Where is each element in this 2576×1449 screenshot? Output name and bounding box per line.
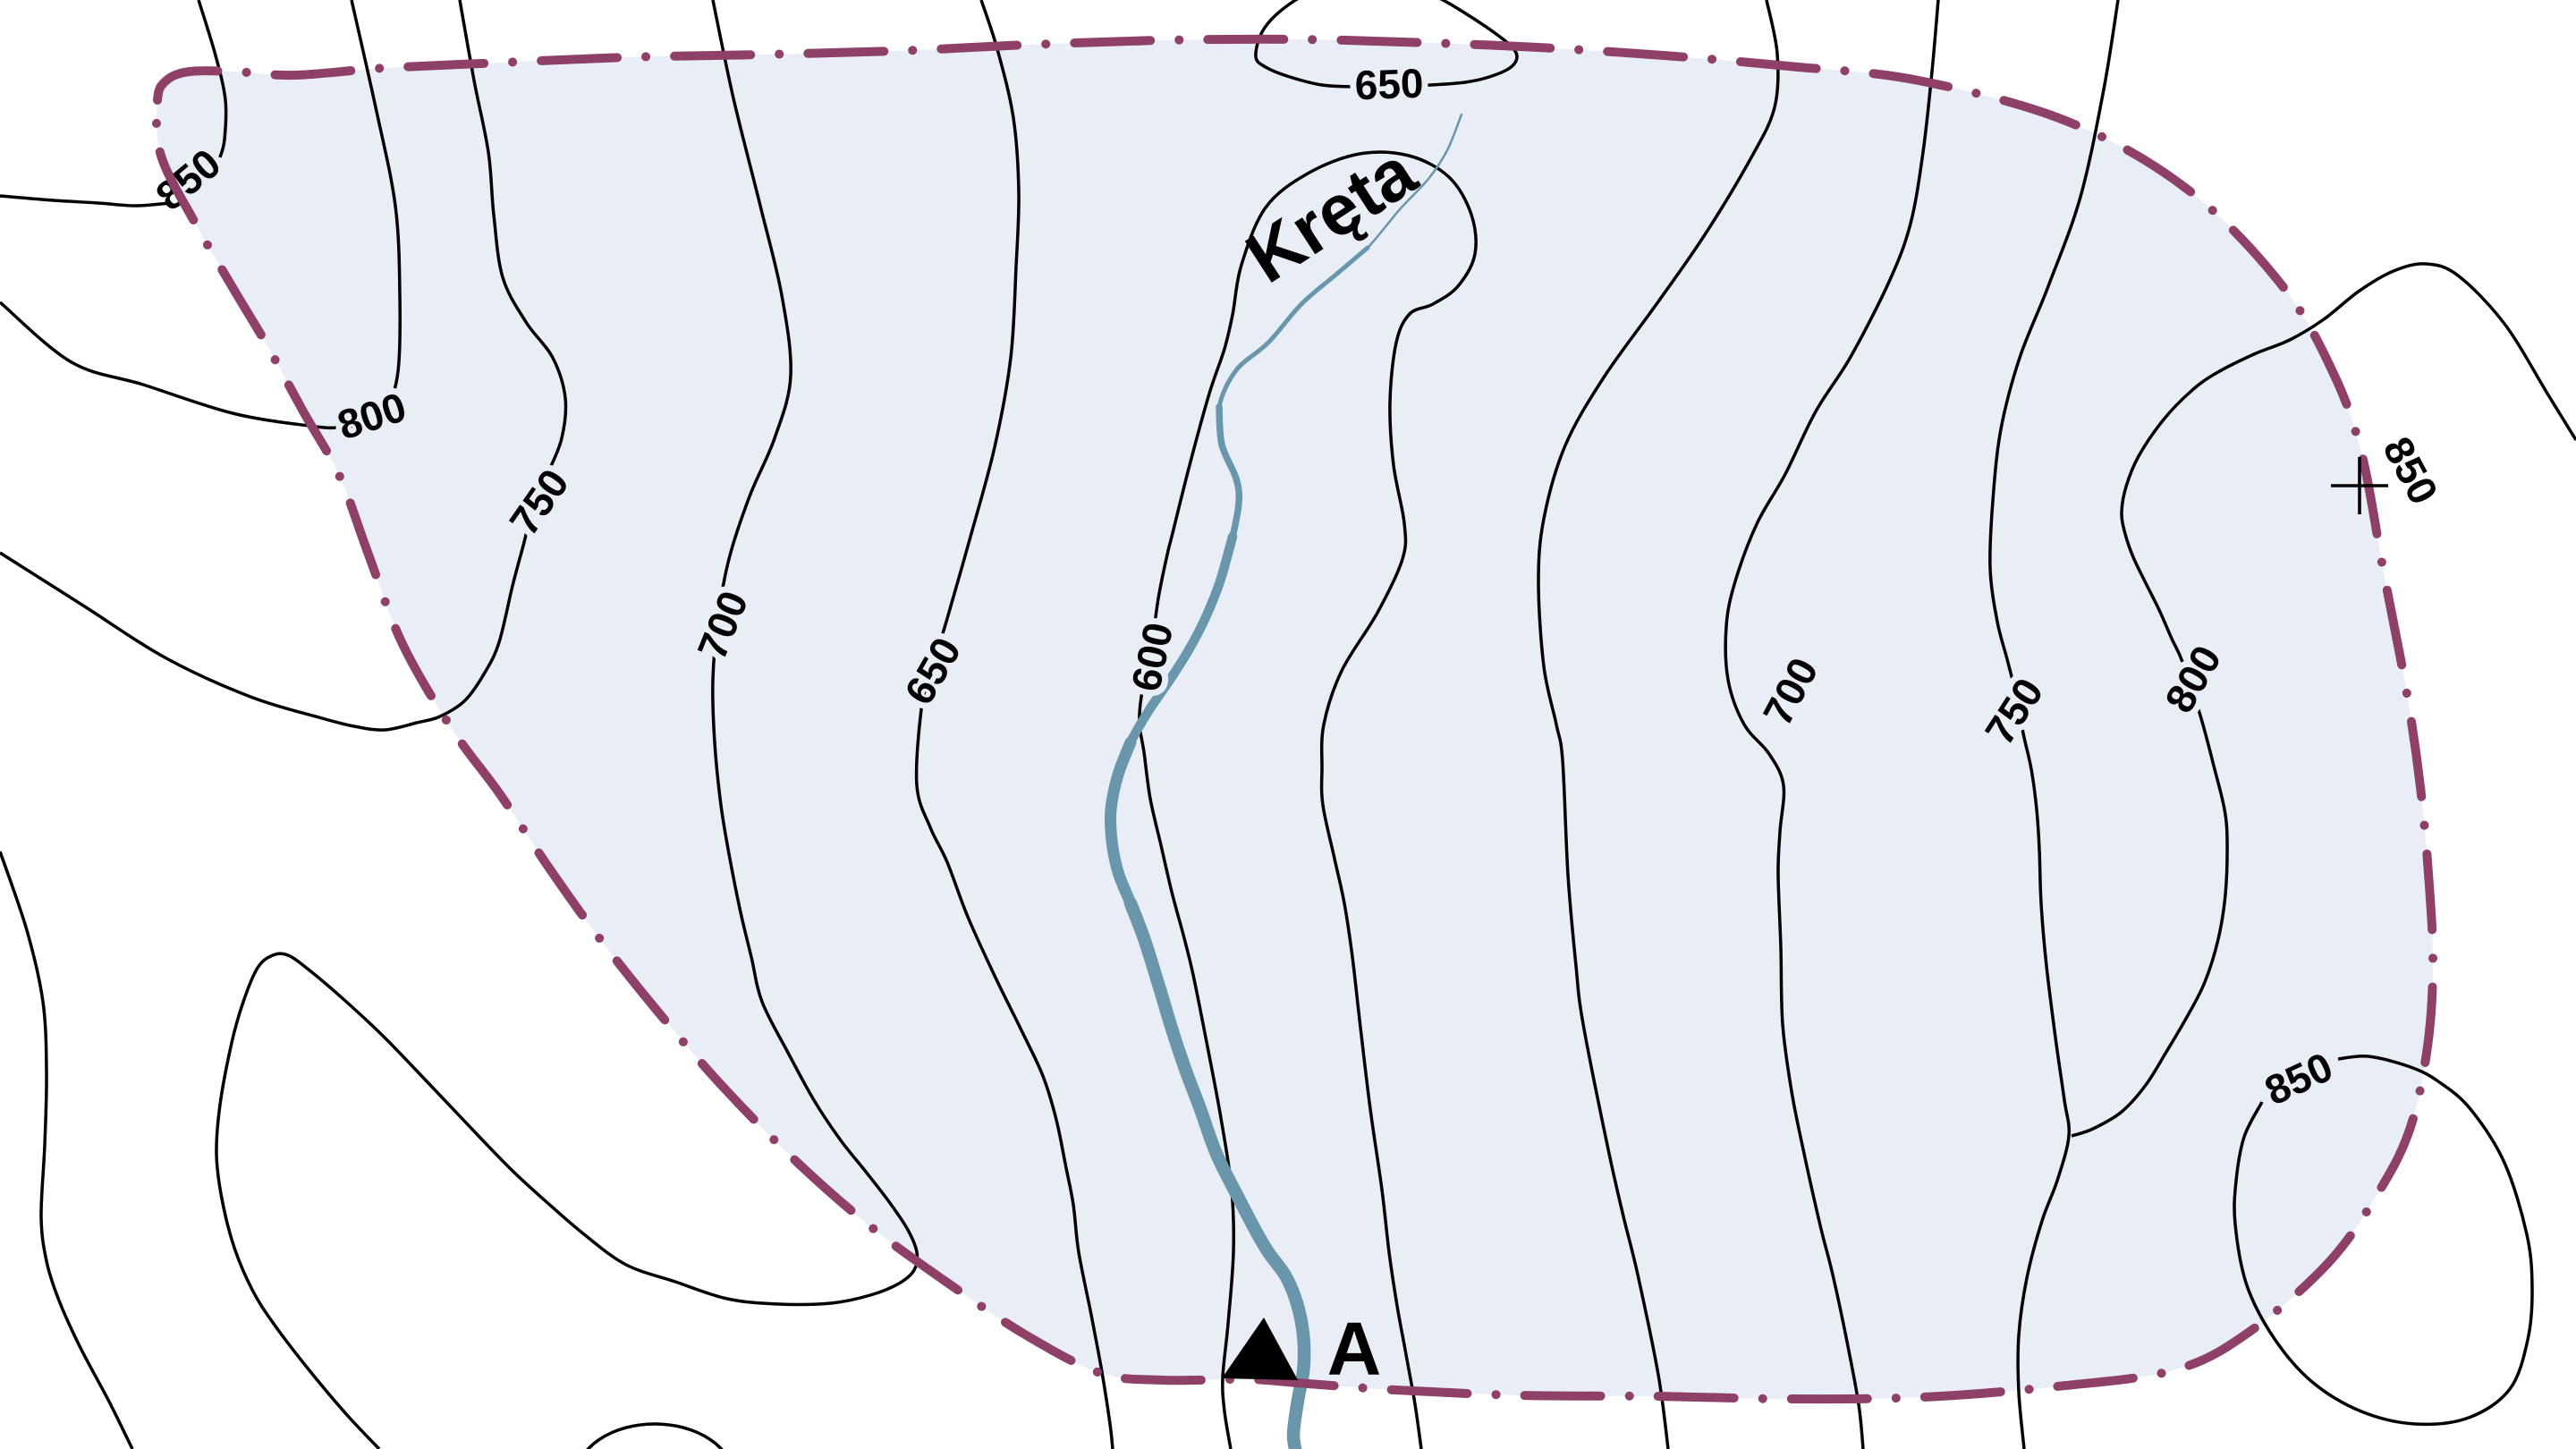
svg-text:A: A bbox=[1327, 1307, 1382, 1391]
svg-text:650: 650 bbox=[1354, 60, 1425, 109]
